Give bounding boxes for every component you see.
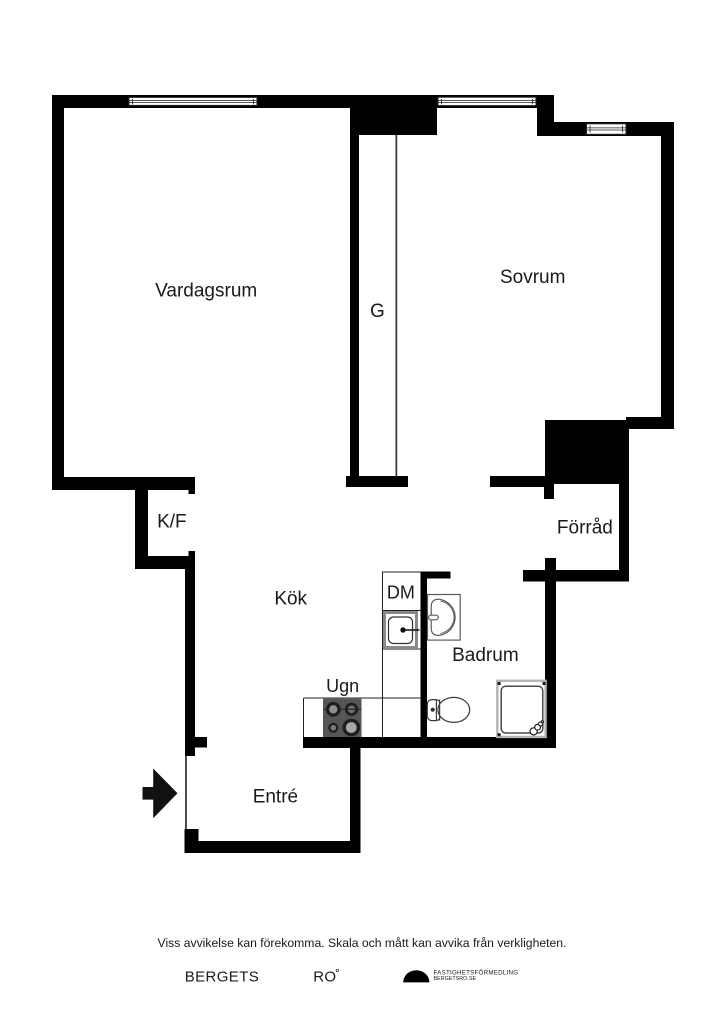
svg-text:Sovrum: Sovrum: [500, 267, 565, 288]
svg-text:BERGETS: BERGETS: [185, 969, 259, 986]
svg-text:Ugn: Ugn: [326, 676, 359, 696]
svg-text:Kök: Kök: [274, 589, 307, 610]
svg-text:Entré: Entré: [253, 786, 298, 807]
svg-text:G: G: [370, 301, 385, 322]
svg-text:BERGETSRO.SE: BERGETSRO.SE: [434, 976, 477, 982]
svg-text:RO: RO: [313, 969, 336, 986]
svg-text:Vardagsrum: Vardagsrum: [155, 281, 257, 302]
svg-text:K/F: K/F: [157, 511, 187, 532]
svg-text:Badrum: Badrum: [452, 645, 519, 666]
svg-text:DM: DM: [387, 583, 415, 603]
svg-text:Viss avvikelse kan förekomma.: Viss avvikelse kan förekomma. Skala och …: [158, 936, 567, 950]
svg-text:Förråd: Förråd: [557, 518, 613, 539]
